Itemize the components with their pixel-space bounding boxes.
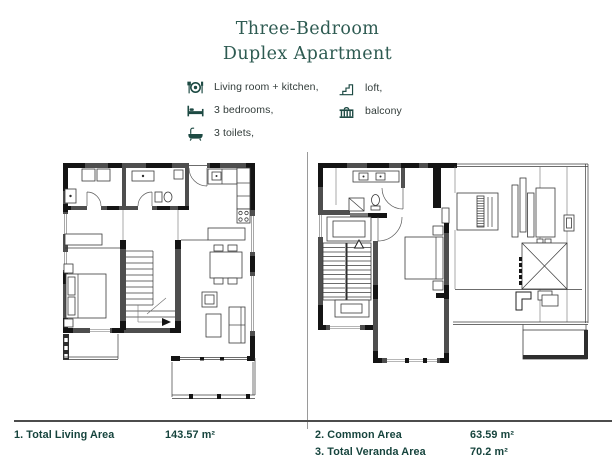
- title-line-1: Three-Bedroom: [0, 17, 615, 42]
- coffee-table: [206, 314, 221, 337]
- bedroom-upper: [405, 226, 443, 290]
- upper-hall: [327, 217, 371, 241]
- toilet: [371, 206, 380, 210]
- legend-item-balcony: balcony: [338, 103, 402, 119]
- total-living-area-value: 143.57 m²: [165, 429, 215, 441]
- stair-treads: [126, 251, 175, 317]
- balcony-icon: [338, 103, 355, 120]
- page-title: Three-Bedroom Duplex Apartment: [0, 17, 615, 67]
- legend-item-bedrooms: 3 bedrooms,: [187, 102, 319, 118]
- skylight: [519, 239, 567, 300]
- staircase: [323, 240, 371, 317]
- legend-label: balcony: [365, 105, 402, 117]
- areas-divider-line: [14, 420, 612, 422]
- loft-ladder: [457, 193, 498, 230]
- floor-plan-page: Three-Bedroom Duplex Apartment Living ro…: [0, 0, 615, 468]
- kitchen: [181, 168, 250, 240]
- legend-item-loft: loft,: [338, 80, 402, 96]
- legend-column-2: loft, balcony: [338, 80, 402, 119]
- legend-label: loft,: [365, 82, 382, 94]
- legend-label: Living room + kitchen,: [214, 81, 319, 93]
- legend-item-living: Living room + kitchen,: [187, 79, 319, 95]
- legend-column-1: Living room + kitchen, 3 bedrooms, 3 toi…: [187, 79, 319, 141]
- common-area-value: 63.59 m²: [470, 429, 514, 441]
- bedroom-1: [64, 234, 120, 327]
- legend-label: 3 bedrooms,: [214, 104, 273, 116]
- entry-door: [189, 168, 207, 186]
- terrace-step: [523, 325, 588, 360]
- plans-vertical-divider: [307, 152, 308, 429]
- sun-loungers: [512, 178, 555, 237]
- total-veranda-area-value: 70.2 m²: [470, 446, 508, 458]
- bed: [405, 237, 443, 279]
- bathroom-1-fixtures: [65, 169, 110, 203]
- total-living-area-label: 1. Total Living Area: [14, 429, 114, 441]
- bed-icon: [187, 102, 204, 119]
- total-veranda-area-label: 3. Total Veranda Area: [315, 446, 426, 458]
- title-line-2: Duplex Apartment: [0, 42, 615, 67]
- dining-table: [210, 245, 242, 284]
- second-level-floor-plan: [305, 155, 605, 373]
- first-level-floor-plan: [50, 156, 285, 414]
- legend-item-toilets: 3 toilets,: [187, 125, 319, 141]
- living-room-furniture: [202, 292, 245, 343]
- bathroom-2-fixtures: [132, 170, 183, 202]
- bathtub-icon: [187, 125, 204, 142]
- sliding-door: [171, 356, 255, 361]
- balcony: [63, 334, 118, 360]
- veranda: [172, 358, 255, 399]
- dining-icon: [187, 79, 204, 96]
- common-area-label: 2. Common Area: [315, 429, 402, 441]
- staircase: [120, 210, 181, 330]
- stairs-icon: [338, 80, 355, 97]
- stair-direction-arrow: [162, 318, 171, 326]
- legend-label: 3 toilets,: [214, 127, 254, 139]
- terrace-seating: [516, 292, 558, 310]
